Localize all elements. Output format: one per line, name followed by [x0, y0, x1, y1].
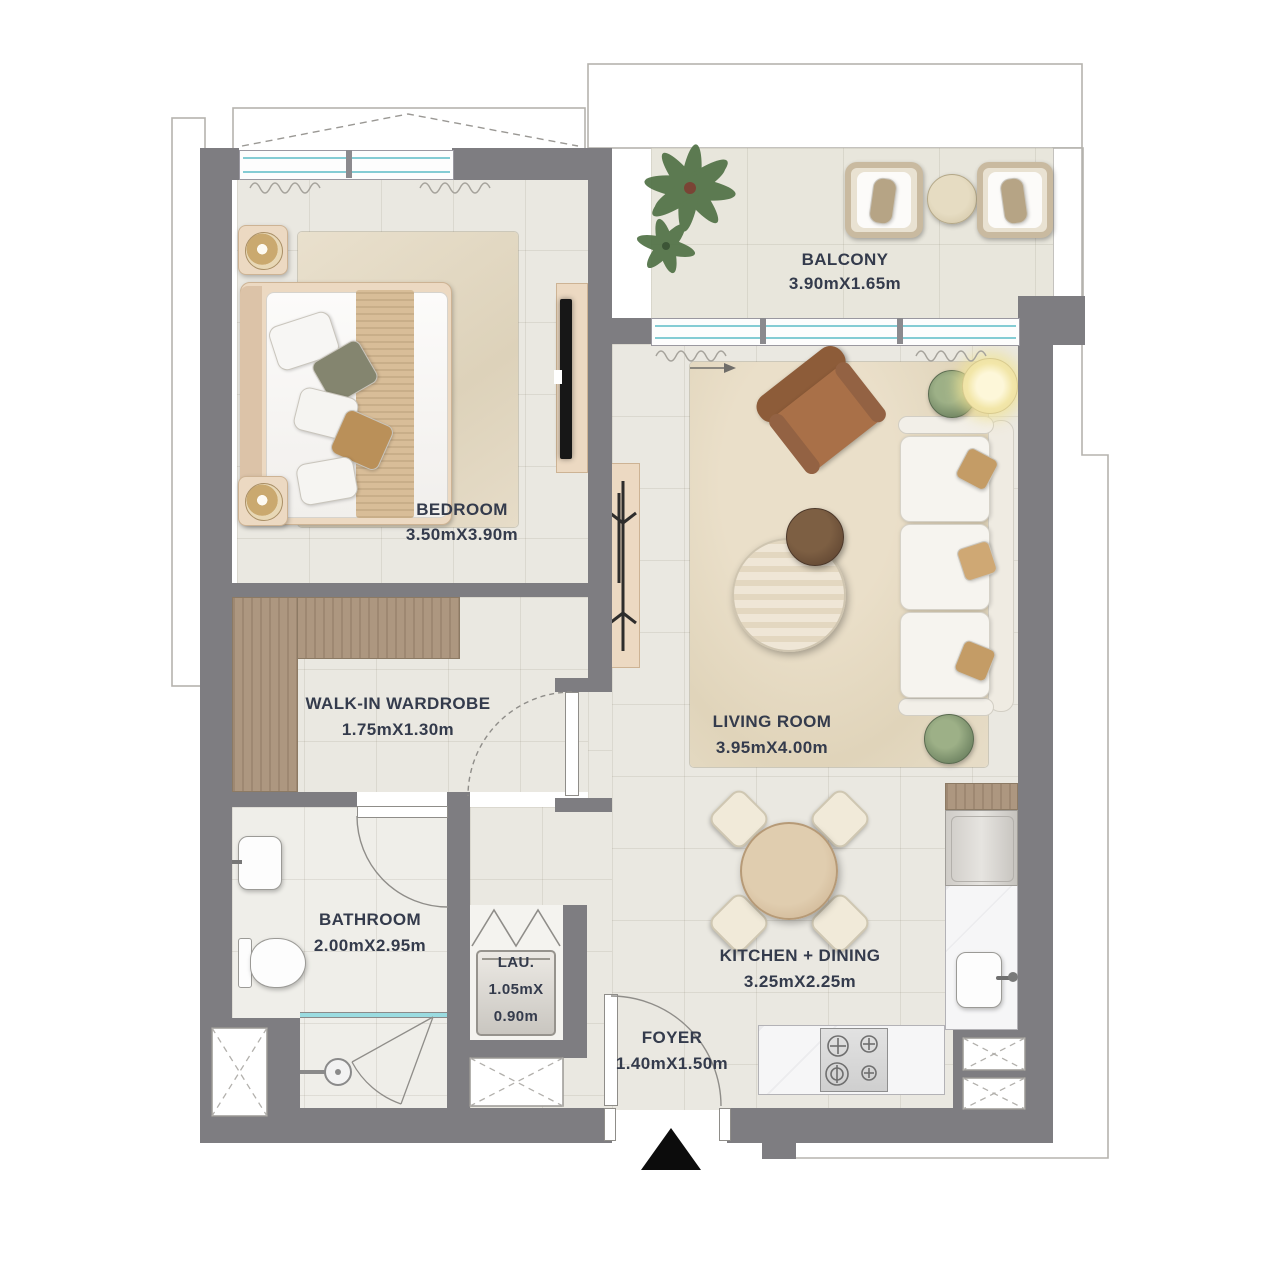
balcony-chair-icon	[845, 162, 923, 238]
stove-icon	[820, 1028, 888, 1092]
window-mullion	[346, 150, 352, 178]
foyer-label: FOYER	[642, 1028, 703, 1048]
tv-mount	[554, 370, 562, 384]
wardrobe-dims: 1.75mX1.30m	[342, 720, 454, 740]
kitchen-faucet-knob	[1008, 972, 1018, 982]
wall	[953, 1030, 1053, 1143]
wall	[200, 1018, 300, 1143]
bedroom-window-bay	[233, 108, 585, 152]
side-table-round-icon	[786, 508, 844, 566]
living-room-label: LIVING ROOM	[713, 712, 832, 732]
laundry-dims-2: 0.90m	[494, 1008, 539, 1025]
wall	[1018, 296, 1085, 345]
wall	[1018, 318, 1053, 1143]
window-mullion	[897, 318, 903, 344]
entrance-jamb	[719, 1108, 731, 1141]
sofa-icon	[898, 416, 1014, 714]
wall	[226, 792, 357, 807]
bedroom-dims: 3.50mX3.90m	[406, 525, 518, 545]
bathroom-dims: 2.00mX2.95m	[314, 936, 426, 956]
wall	[563, 905, 587, 1050]
wall	[447, 1040, 587, 1058]
bay-dashed-chevron	[242, 114, 578, 146]
balcony-dims: 3.90mX1.65m	[789, 274, 901, 294]
wardrobe-closet-left	[232, 597, 298, 792]
kitchen-sink-icon	[956, 952, 1002, 1008]
table-lamp-icon	[245, 483, 283, 521]
bathroom-label: BATHROOM	[319, 910, 421, 930]
door-jamb	[555, 798, 612, 812]
wall	[588, 148, 612, 678]
kitchen-dining-label: KITCHEN + DINING	[720, 946, 881, 966]
wardrobe-door-leaf	[565, 692, 579, 796]
foyer-dims: 1.40mX1.50m	[616, 1054, 728, 1074]
bathroom-sink-icon	[238, 836, 282, 890]
plant-side-table-icon	[924, 714, 974, 764]
entrance-door-leaf	[604, 994, 618, 1106]
wall	[200, 148, 232, 1143]
hall-floor-strip	[588, 678, 612, 808]
window-mullion	[760, 318, 766, 344]
fridge-door	[951, 816, 1014, 882]
balcony-top-bay	[588, 64, 1082, 148]
kitchen-upper-cabinet	[945, 783, 1018, 810]
floor-lamp-icon	[962, 358, 1018, 414]
door-jamb	[555, 678, 612, 692]
balcony-right-frame	[1053, 148, 1083, 298]
wall	[447, 792, 470, 1143]
bathroom-door-leaf	[357, 806, 448, 818]
wall	[232, 583, 588, 597]
toilet-icon	[250, 938, 306, 988]
entrance-marker-icon	[641, 1128, 701, 1170]
kitchen-dining-dims: 3.25mX2.25m	[744, 972, 856, 992]
bed-runner	[356, 290, 414, 518]
wardrobe-label: WALK-IN WARDROBE	[306, 694, 491, 714]
balcony-table-icon	[927, 174, 977, 224]
floor-plan: BALCONY 3.90mX1.65m BEDROOM 3.50mX3.90m …	[0, 0, 1280, 1280]
laundry-dims-1: 1.05mX	[489, 981, 544, 998]
balcony-chair-icon	[977, 162, 1053, 238]
shower-glass-panel	[300, 1012, 447, 1018]
laundry-label: LAU.	[498, 954, 535, 971]
balcony-label: BALCONY	[802, 250, 889, 270]
table-lamp-icon	[245, 232, 283, 270]
wall-step	[762, 1143, 796, 1159]
shower-head-icon	[324, 1058, 352, 1086]
bedroom-label: BEDROOM	[416, 500, 508, 520]
wall	[452, 148, 595, 180]
living-room-dims: 3.95mX4.00m	[716, 738, 828, 758]
dining-table-icon	[740, 822, 838, 920]
wall	[597, 318, 651, 344]
balcony-sliding-door	[651, 318, 1020, 346]
entrance-jamb	[604, 1108, 616, 1141]
shower-arm	[300, 1070, 326, 1074]
